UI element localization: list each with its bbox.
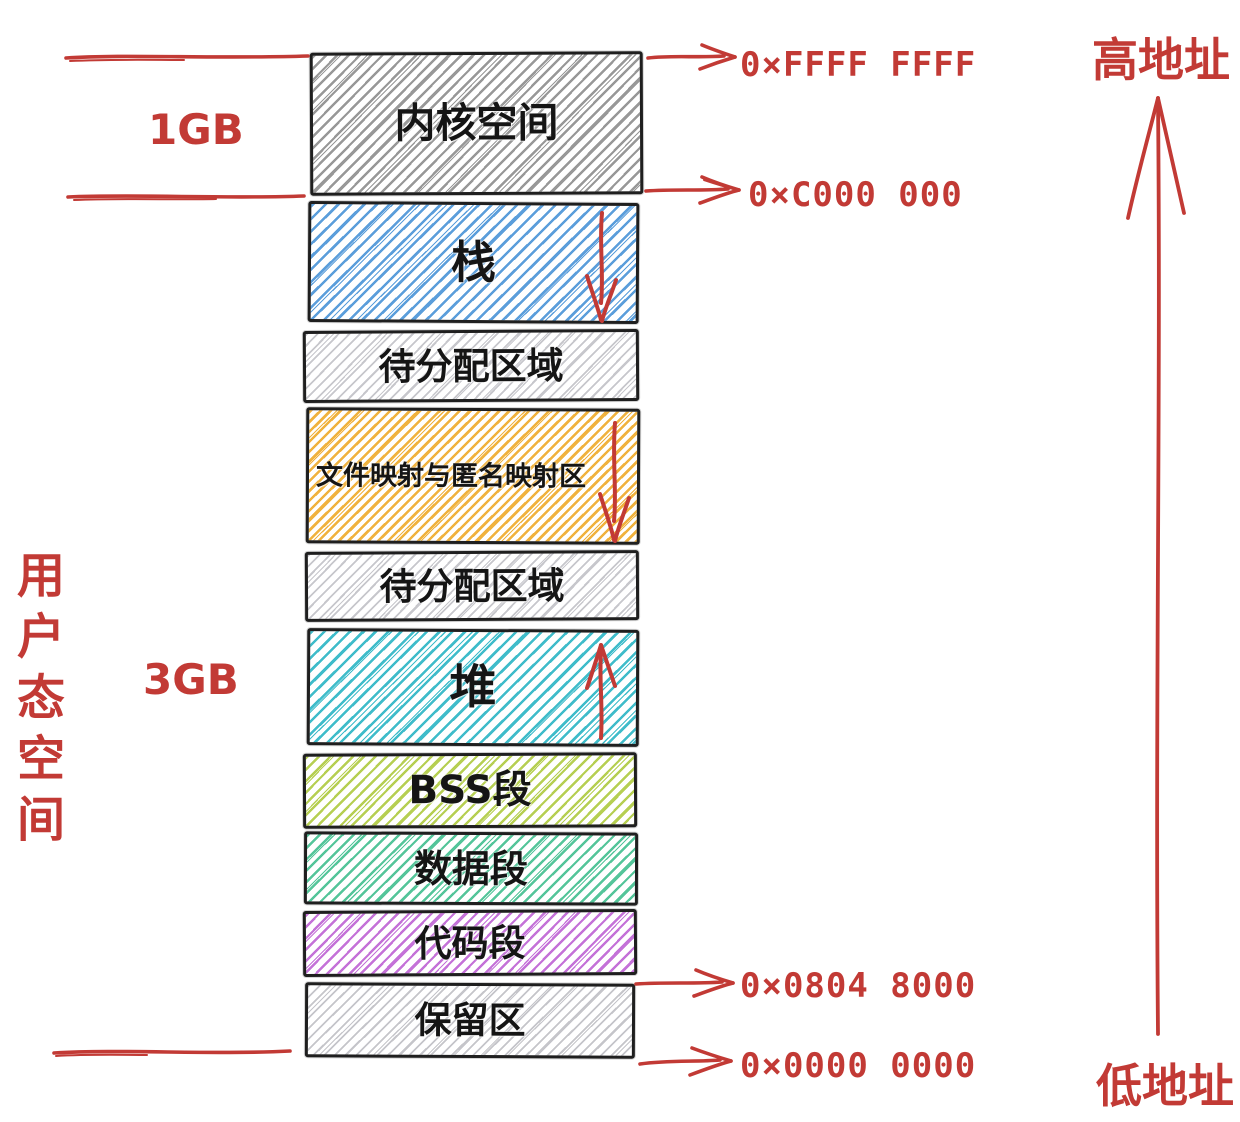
- user-size-label: 3GB: [143, 655, 239, 704]
- address-axis-up-arrow-icon: [1118, 88, 1198, 1038]
- segment-unallocated-upper: 待分配区域: [303, 329, 639, 403]
- kernel-user-boundary-line: [66, 192, 306, 202]
- segment-label: 待分配区域: [379, 567, 564, 605]
- addr-kernel-base-value: 0×C000 000: [748, 175, 963, 215]
- addr-bottom-value: 0×0000 0000: [740, 1046, 976, 1086]
- addr-code-base-value: 0×0804 8000: [740, 966, 976, 1006]
- segment-label: 待分配区域: [378, 347, 563, 385]
- segment-label: 文件映射与匿名映射区: [316, 462, 586, 490]
- segment-label: 栈: [451, 240, 496, 285]
- segment-label: 保留区: [414, 1002, 525, 1039]
- segment-label: BSS段: [408, 771, 531, 811]
- segment-unallocated-lower: 待分配区域: [305, 550, 639, 622]
- user-space-label: 用户态空间: [12, 550, 60, 855]
- segment-label: 堆: [449, 664, 496, 711]
- segment-mmap-region: 文件映射与匿名映射区: [306, 407, 641, 544]
- segment-label: 代码段: [414, 924, 525, 962]
- stack-grow-down-arrow-icon: [580, 210, 624, 325]
- kernel-top-boundary-line: [64, 52, 310, 62]
- low-address-label: 低地址: [1096, 1050, 1234, 1116]
- addr-top-pointer-arrow-icon: [646, 42, 738, 72]
- memory-layout-diagram: 内核空间 栈 待分配区域 文件映射与匿名映射区 待分配区域 堆 BSS段 数据段…: [0, 0, 1240, 1122]
- segment-data: 数据段: [304, 831, 638, 905]
- segment-label: 内核空间: [394, 103, 558, 145]
- segment-bss: BSS段: [303, 752, 637, 828]
- addr-kernel-base-pointer-arrow-icon: [644, 174, 742, 206]
- segment-reserved: 保留区: [305, 982, 635, 1058]
- segment-code: 代码段: [303, 909, 637, 977]
- addr-bottom-pointer-arrow-icon: [638, 1044, 734, 1078]
- high-address-label: 高地址: [1092, 24, 1230, 90]
- bottom-boundary-line: [52, 1046, 292, 1058]
- addr-code-base-pointer-arrow-icon: [634, 967, 736, 999]
- heap-grow-up-arrow-icon: [578, 640, 622, 742]
- segment-kernel-space: 内核空间: [310, 51, 644, 195]
- kernel-size-label: 1GB: [148, 105, 244, 154]
- mmap-grow-down-arrow-icon: [592, 420, 636, 545]
- segment-label: 数据段: [414, 849, 528, 887]
- addr-top-value: 0×FFFF FFFF: [740, 45, 976, 85]
